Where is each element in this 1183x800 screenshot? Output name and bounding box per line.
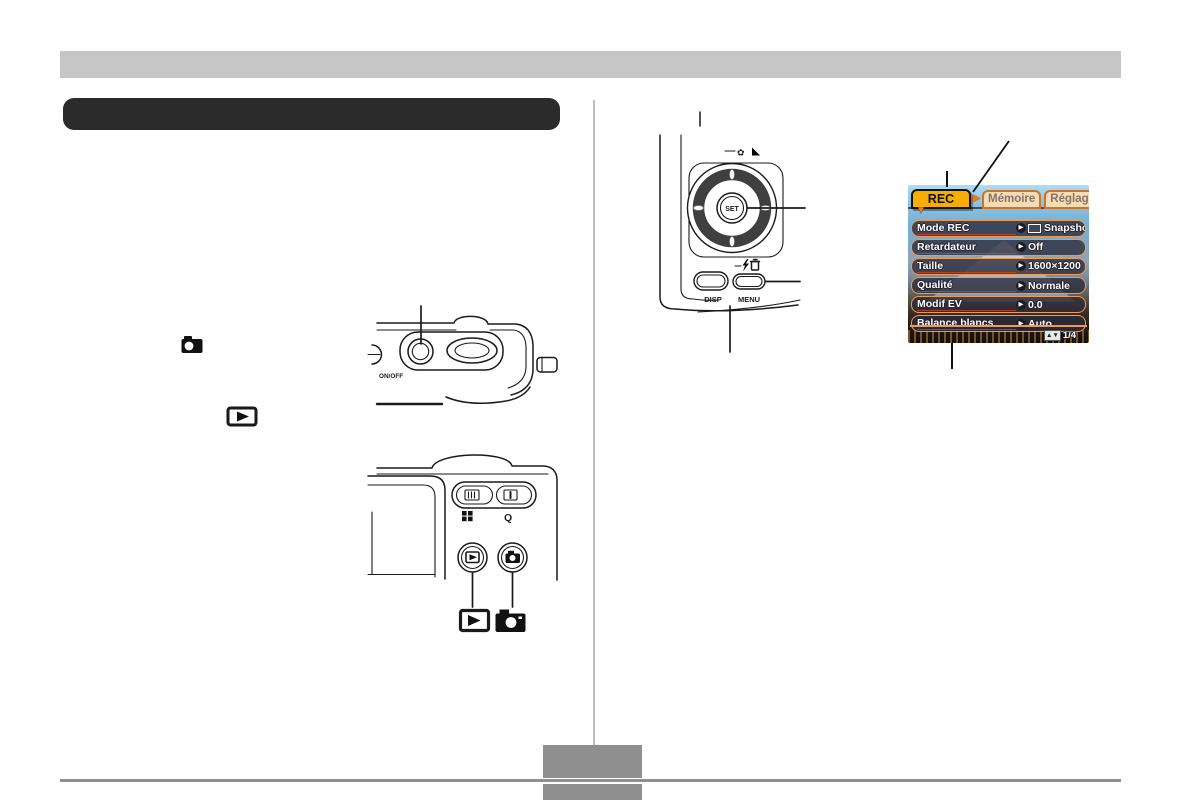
menu-panel-bottom-border [910, 325, 1087, 327]
menu-list: Mode REC ▶ Snapshot Retardateur ▶ Off Ta… [911, 220, 1086, 335]
lcd-frame-outer [368, 476, 445, 579]
quick-mode-icon [752, 148, 760, 156]
camera-back-view-diagram: Q [368, 450, 568, 642]
menu-item-label: Retardateur [917, 241, 1016, 254]
delete-trash-icon [751, 260, 760, 271]
callout-line-diagonal [968, 136, 1012, 196]
arrow-bullet-icon: ▶ [1016, 261, 1026, 271]
arrow-bullet-icon: ▶ [1016, 300, 1026, 310]
page-number: 1/4 [1063, 330, 1076, 341]
magnify-label: Q [504, 512, 512, 524]
camera-menu-screen: REC ▶ Mémoire Réglage ▼ Mode REC ▶ Snaps… [908, 185, 1089, 343]
footer-page-number-box [543, 745, 642, 778]
menu-item-value: Auto [1028, 318, 1052, 330]
record-button-camera-glyph [506, 551, 521, 563]
disp-label: DISP [704, 295, 722, 304]
menu-item-value: 1600×1200 [1028, 260, 1081, 272]
tab-pointer-icon: ▼ [916, 205, 926, 216]
menu-item-label: Balance blancs [917, 317, 1016, 330]
footer-lower-box [543, 784, 642, 800]
power-label: ON/OFF [379, 373, 403, 380]
arrow-bullet-icon: ▶ [1016, 319, 1026, 329]
column-divider [593, 100, 595, 748]
macro-flower-icon: ✿ [737, 149, 745, 159]
tab-reglage: Réglage [1044, 190, 1089, 209]
updown-arrows-icon: ▲▼ [1044, 330, 1061, 341]
menu-item-value: Snapshot [1028, 222, 1086, 234]
lcd-frame-inner [368, 485, 435, 577]
snapshot-frame-icon [1028, 224, 1041, 233]
menu-row-retardateur: Retardateur ▶ Off [911, 239, 1086, 256]
up-button-notch [730, 170, 735, 180]
page-header-bar [60, 51, 1121, 78]
manual-page: { "lcd": { "tabs": { "rec": "REC", "memo… [0, 0, 1183, 800]
menu-row-modif-ev: Modif EV ▶ 0.0 [911, 296, 1086, 313]
camera-top-view-diagram: ON/OFF [368, 298, 568, 416]
four-way-controller-diagram: SET ✿ DISP MENU [648, 112, 813, 366]
menu-item-label: Mode REC [917, 222, 1016, 235]
menu-item-label: Modif EV [917, 298, 1016, 311]
arrow-bullet-icon: ▶ [1016, 223, 1026, 233]
menu-row-taille: Taille ▶ 1600×1200 [911, 258, 1086, 275]
menu-item-value: 0.0 [1028, 299, 1043, 311]
menu-row-mode-rec: Mode REC ▶ Snapshot [911, 220, 1086, 237]
set-label: SET [725, 206, 739, 213]
arrow-bullet-icon: ▶ [1016, 281, 1026, 291]
section-title-bar [63, 98, 560, 130]
menu-row-qualite: Qualité ▶ Normale [911, 277, 1086, 294]
arrow-bullet-icon: ▶ [1016, 242, 1026, 252]
menu-item-value: Normale [1028, 280, 1070, 292]
strap-lug [537, 358, 557, 373]
menu-page-indicator: ▲▼ 1/4 [1044, 330, 1076, 341]
callout-line-below-screen [951, 343, 953, 369]
menu-label: MENU [738, 295, 760, 304]
menu-item-label: Qualité [917, 279, 1016, 292]
playback-icon [461, 611, 489, 631]
record-mode-camera-icon [181, 335, 203, 354]
left-button-notch [694, 206, 704, 211]
camera-icon [496, 610, 526, 633]
thumbnail-grid-icon [462, 511, 473, 521]
playback-mode-icon [226, 406, 258, 427]
zoom-tele-button-drawing [497, 486, 532, 504]
flash-icon [743, 259, 750, 272]
down-button-notch [730, 237, 735, 247]
top-control-panel [400, 332, 503, 370]
menu-item-label: Taille [917, 260, 1016, 273]
callout-line-to-rec-tab [946, 171, 948, 187]
footer-rule [60, 779, 1121, 782]
menu-item-value: Off [1028, 241, 1043, 253]
